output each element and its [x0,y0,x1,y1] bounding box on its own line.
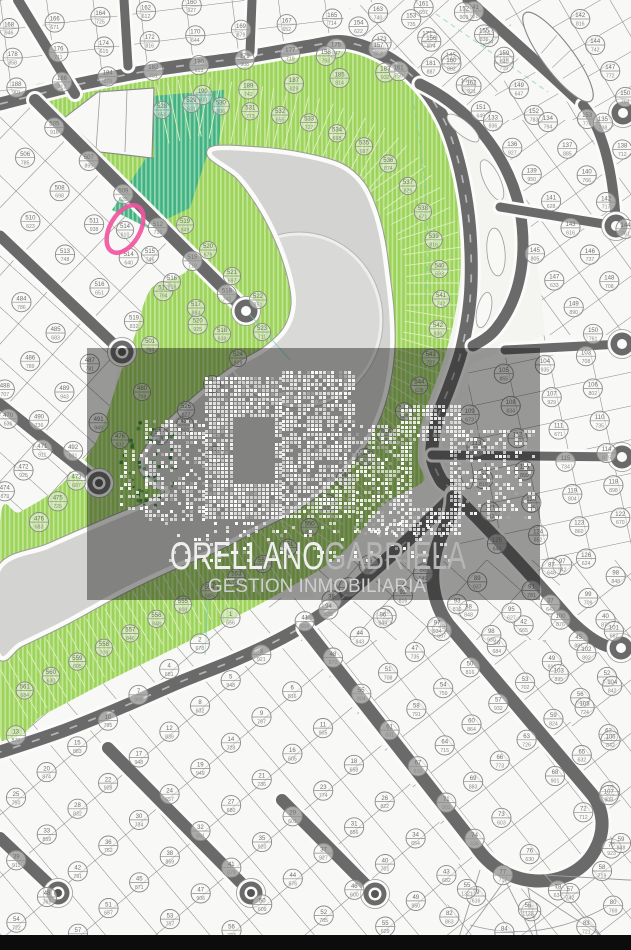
svg-text:56: 56 [228,924,235,930]
svg-text:140: 140 [582,170,593,176]
svg-text:149: 149 [514,83,525,89]
svg-text:789: 789 [26,364,35,370]
svg-text:520: 520 [193,319,204,325]
svg-text:48: 48 [330,652,337,658]
svg-text:61: 61 [386,724,393,730]
svg-text:ORELLANOGABRIELA: ORELLANOGABRIELA [170,535,466,578]
svg-text:63: 63 [523,734,530,740]
svg-text:176: 176 [53,46,64,52]
svg-text:77: 77 [500,869,507,875]
svg-text:928: 928 [104,786,113,792]
svg-text:664: 664 [300,624,309,630]
svg-text:773: 773 [495,763,504,769]
svg-text:712: 712 [618,152,627,158]
svg-text:742: 742 [566,896,575,902]
svg-text:104: 104 [607,680,618,686]
svg-text:738: 738 [599,125,608,131]
svg-text:693: 693 [435,272,444,278]
svg-text:879: 879 [237,32,246,38]
svg-text:761: 761 [589,337,598,343]
svg-text:486: 486 [25,355,36,361]
svg-text:31: 31 [351,822,358,828]
svg-text:657: 657 [104,911,113,917]
svg-text:164: 164 [95,11,106,17]
svg-text:944: 944 [378,621,387,627]
svg-text:727: 727 [305,125,314,131]
svg-text:118: 118 [609,480,619,486]
svg-text:836: 836 [434,331,443,337]
svg-text:750: 750 [394,74,403,80]
svg-text:633: 633 [550,283,559,289]
svg-text:629: 629 [381,929,390,935]
svg-text:55: 55 [358,688,365,694]
svg-text:679: 679 [204,253,213,259]
svg-text:48: 48 [44,891,51,897]
svg-text:39: 39 [13,855,20,861]
svg-text:484: 484 [16,296,27,302]
svg-text:683: 683 [51,336,60,342]
svg-text:35: 35 [259,836,266,842]
svg-text:870: 870 [329,660,338,666]
svg-text:160: 160 [187,0,198,6]
svg-text:56: 56 [525,903,532,909]
svg-text:805: 805 [73,664,82,670]
svg-text:711: 711 [258,335,266,341]
svg-text:876: 876 [288,881,297,887]
svg-text:761: 761 [621,231,630,237]
svg-text:489: 489 [59,386,70,392]
svg-text:772: 772 [606,74,615,80]
svg-text:785: 785 [21,160,30,166]
svg-text:786: 786 [17,305,26,311]
svg-text:814: 814 [335,81,344,87]
svg-text:16: 16 [289,748,296,754]
svg-text:711: 711 [54,55,62,61]
svg-text:161: 161 [419,2,430,8]
svg-text:103: 103 [581,350,592,356]
svg-text:44: 44 [289,873,296,879]
svg-text:615: 615 [100,49,109,55]
svg-text:142: 142 [601,196,612,202]
svg-text:671: 671 [419,215,428,221]
svg-text:698: 698 [333,136,342,142]
svg-text:927: 927 [508,150,517,156]
svg-text:687: 687 [72,483,81,489]
svg-text:684: 684 [492,649,501,655]
svg-text:871: 871 [135,885,144,891]
svg-text:714: 714 [328,21,337,27]
svg-text:948: 948 [134,760,143,766]
svg-text:472: 472 [18,465,29,471]
svg-text:539: 539 [429,234,440,240]
svg-text:519: 519 [129,316,140,322]
svg-text:159: 159 [499,51,510,57]
svg-text:656: 656 [226,620,235,626]
svg-text:887: 887 [427,70,436,76]
svg-text:515: 515 [187,255,198,261]
svg-text:938: 938 [218,337,227,343]
svg-text:142: 142 [575,13,586,19]
svg-text:808: 808 [179,607,188,613]
svg-text:863: 863 [445,920,454,926]
svg-text:708: 708 [384,676,393,682]
svg-text:541: 541 [436,293,447,299]
svg-text:627: 627 [507,615,516,621]
svg-text:474: 474 [0,486,10,492]
svg-text:490: 490 [34,414,45,420]
svg-text:19: 19 [197,763,204,769]
svg-text:908: 908 [240,62,249,68]
svg-text:136: 136 [507,142,518,148]
svg-text:172: 172 [145,35,156,41]
svg-text:155: 155 [479,29,490,35]
svg-text:558: 558 [99,642,110,648]
svg-text:185: 185 [335,72,346,78]
svg-text:671: 671 [554,432,563,438]
svg-text:59: 59 [618,837,625,843]
svg-text:719: 719 [286,57,295,63]
svg-text:53: 53 [522,677,529,683]
svg-text:122: 122 [615,512,626,518]
svg-text:742: 742 [223,297,232,303]
svg-text:152: 152 [459,6,470,12]
svg-text:11: 11 [320,722,327,728]
svg-text:189: 189 [243,84,254,90]
svg-text:71: 71 [443,797,450,803]
svg-text:1321: 1321 [461,892,473,898]
svg-text:654: 654 [411,841,420,847]
svg-text:507: 507 [84,155,95,161]
svg-text:12: 12 [166,726,173,732]
svg-text:628: 628 [547,204,556,210]
svg-text:898: 898 [609,488,618,494]
svg-text:69: 69 [470,776,477,782]
svg-text:68: 68 [552,770,559,776]
svg-text:40: 40 [382,858,389,864]
svg-text:773: 773 [246,114,255,120]
svg-text:678: 678 [195,646,204,652]
svg-text:178: 178 [8,52,19,58]
svg-text:717: 717 [602,205,611,211]
svg-text:793: 793 [321,59,330,65]
svg-text:182: 182 [148,65,159,71]
svg-text:769: 769 [609,908,618,914]
svg-text:102: 102 [581,647,592,653]
svg-text:657: 657 [419,10,428,16]
svg-text:97: 97 [434,621,441,627]
svg-text:600: 600 [350,892,359,898]
svg-text:870: 870 [11,738,20,744]
svg-text:30: 30 [136,814,143,820]
svg-text:810: 810 [453,607,462,613]
svg-text:41: 41 [228,862,235,868]
svg-text:921: 921 [257,657,266,663]
svg-text:816: 816 [168,285,177,291]
svg-text:22: 22 [105,777,112,783]
svg-text:794: 794 [621,100,630,106]
svg-text:735: 735 [407,22,416,28]
svg-text:701: 701 [381,867,390,873]
svg-text:742: 742 [437,302,446,308]
svg-text:609: 609 [258,907,267,913]
svg-text:105: 105 [580,702,591,708]
svg-text:839: 839 [165,734,174,740]
svg-text:50: 50 [467,662,474,668]
svg-text:765: 765 [43,900,52,906]
svg-text:635: 635 [119,197,128,203]
svg-text:708: 708 [605,284,614,290]
svg-text:712: 712 [579,815,588,821]
svg-text:512: 512 [153,222,164,228]
svg-text:655: 655 [276,118,285,124]
svg-text:516: 516 [167,276,178,282]
svg-text:168: 168 [4,22,15,28]
svg-text:45: 45 [575,635,582,641]
svg-text:104: 104 [540,359,551,365]
svg-text:17: 17 [135,752,142,758]
svg-text:184: 184 [103,71,114,77]
svg-text:848: 848 [464,613,473,619]
svg-text:725: 725 [96,20,105,26]
svg-text:783: 783 [530,118,539,124]
svg-text:36: 36 [105,840,112,846]
svg-text:179: 179 [240,54,251,60]
svg-text:161: 161 [394,65,405,71]
svg-text:829: 829 [290,86,299,92]
svg-text:874: 874 [427,44,436,50]
svg-text:94: 94 [325,604,332,610]
svg-text:839: 839 [324,612,333,618]
svg-text:610: 610 [414,769,423,775]
svg-text:816: 816 [466,670,475,676]
svg-text:802: 802 [588,391,597,397]
svg-text:56: 56 [577,692,584,698]
svg-text:616: 616 [566,231,575,237]
svg-text:83: 83 [583,921,590,927]
svg-text:734: 734 [135,823,144,829]
svg-text:158: 158 [321,50,332,56]
svg-text:51: 51 [385,667,392,673]
svg-text:529: 529 [186,98,197,104]
svg-text:76: 76 [526,848,533,854]
svg-text:665: 665 [519,628,528,634]
svg-text:107: 107 [547,391,558,397]
svg-text:186: 186 [57,76,68,82]
svg-text:691: 691 [196,834,205,840]
svg-text:943: 943 [60,395,69,401]
svg-text:901: 901 [442,805,451,811]
svg-text:920: 920 [258,845,267,851]
svg-text:106: 106 [588,383,599,389]
svg-text:508: 508 [55,185,66,191]
svg-text:557: 557 [125,628,136,634]
svg-text:475: 475 [53,496,64,502]
svg-text:822: 822 [380,804,389,810]
svg-text:535: 535 [359,141,370,147]
svg-text:47: 47 [412,646,419,652]
svg-text:73: 73 [498,812,505,818]
svg-text:485: 485 [51,327,62,333]
svg-text:682: 682 [442,878,451,884]
svg-text:805: 805 [531,256,540,262]
svg-text:20: 20 [43,766,50,772]
svg-text:111: 111 [554,424,564,430]
svg-text:895: 895 [84,164,93,170]
svg-text:107: 107 [604,789,615,795]
svg-text:40: 40 [602,614,609,620]
svg-text:561: 561 [20,685,31,691]
svg-text:719: 719 [598,874,607,880]
svg-text:892: 892 [582,655,591,661]
svg-text:528: 528 [157,104,168,110]
svg-text:GESTION INMOBILIARIA: GESTION INMOBILIARIA [208,575,426,597]
svg-text:23: 23 [320,785,327,791]
svg-text:13: 13 [12,730,19,736]
svg-text:842: 842 [606,743,615,749]
svg-text:516: 516 [94,282,105,288]
svg-text:519: 519 [180,219,191,225]
svg-text:931: 931 [69,454,78,460]
svg-text:95: 95 [508,607,515,613]
svg-text:925: 925 [19,473,28,479]
svg-text:138: 138 [617,144,628,150]
svg-text:64: 64 [441,740,448,746]
svg-text:180: 180 [194,59,205,65]
svg-text:169: 169 [236,24,247,30]
svg-text:542: 542 [433,323,444,329]
svg-text:795: 795 [104,723,113,729]
svg-text:658: 658 [350,768,359,774]
svg-text:735: 735 [411,655,420,661]
svg-text:187: 187 [289,78,300,84]
svg-text:816: 816 [576,22,585,28]
svg-text:163: 163 [373,7,384,13]
svg-text:27: 27 [228,799,235,805]
svg-text:190: 190 [198,89,209,95]
svg-text:470: 470 [3,413,14,419]
svg-text:776: 776 [583,122,592,128]
svg-text:1138: 1138 [522,912,533,918]
svg-text:156: 156 [426,36,437,42]
svg-text:859: 859 [165,859,174,865]
svg-text:147: 147 [549,275,560,281]
svg-text:901: 901 [551,779,560,785]
svg-text:916: 916 [50,130,59,136]
svg-text:518: 518 [217,328,228,334]
svg-text:657: 657 [165,797,174,803]
svg-text:797: 797 [257,720,266,726]
svg-text:921: 921 [467,89,476,95]
svg-text:632: 632 [196,709,205,715]
svg-text:759: 759 [439,691,448,697]
svg-text:623: 623 [26,224,35,230]
svg-text:816: 816 [288,694,297,700]
svg-text:520: 520 [203,244,214,250]
svg-text:96: 96 [379,612,386,618]
svg-text:28: 28 [74,803,81,809]
svg-text:905: 905 [134,698,143,704]
svg-text:174: 174 [99,41,110,47]
svg-text:946: 946 [5,31,14,37]
svg-text:938: 938 [90,227,99,233]
svg-text:536: 536 [383,158,394,164]
svg-text:43: 43 [443,869,450,875]
svg-text:701: 701 [149,73,158,79]
svg-text:103: 103 [554,668,565,674]
svg-text:119: 119 [568,488,578,494]
svg-text:848: 848 [611,579,620,585]
svg-text:556: 556 [151,613,162,619]
svg-text:885: 885 [563,151,572,157]
svg-text:29: 29 [289,811,296,817]
svg-text:640: 640 [124,260,133,266]
svg-text:848: 848 [617,846,626,852]
svg-text:879: 879 [103,79,112,85]
svg-text:734: 734 [561,464,570,470]
svg-text:785: 785 [319,918,328,924]
svg-text:152: 152 [529,109,540,115]
svg-text:932: 932 [381,75,390,81]
svg-text:832: 832 [73,811,82,817]
svg-text:890: 890 [569,310,578,316]
svg-text:560: 560 [46,670,57,676]
svg-text:603: 603 [497,821,506,827]
svg-text:950: 950 [527,177,536,183]
svg-text:53: 53 [167,913,174,919]
svg-text:509: 509 [118,188,129,194]
svg-text:843: 843 [355,639,364,645]
svg-text:742: 742 [591,48,600,54]
svg-text:948: 948 [226,683,235,689]
svg-text:709: 709 [584,601,593,607]
svg-text:46: 46 [351,884,358,890]
svg-text:166: 166 [50,17,61,23]
svg-text:10: 10 [105,715,112,721]
svg-text:80: 80 [610,900,617,906]
svg-text:533: 533 [304,117,315,123]
svg-text:144: 144 [590,39,601,45]
svg-text:151: 151 [476,105,487,111]
svg-text:38: 38 [166,851,173,857]
svg-text:514: 514 [120,224,131,230]
svg-text:115: 115 [561,456,571,462]
svg-text:735: 735 [595,423,604,429]
svg-text:652: 652 [282,27,291,33]
svg-text:153: 153 [582,113,593,119]
svg-text:59: 59 [550,713,557,719]
svg-text:106: 106 [605,735,616,741]
svg-text:901: 901 [12,90,21,96]
svg-text:876: 876 [556,622,565,628]
svg-text:530: 530 [216,100,227,106]
svg-text:804: 804 [568,497,577,503]
svg-text:143: 143 [565,222,576,228]
svg-text:707: 707 [0,392,9,398]
svg-text:605: 605 [288,756,297,762]
svg-text:742: 742 [244,92,253,98]
svg-text:728: 728 [227,745,236,751]
svg-text:934: 934 [433,629,442,635]
svg-text:154: 154 [353,21,364,27]
svg-text:684: 684 [20,693,29,699]
svg-text:612: 612 [142,14,151,20]
svg-text:141: 141 [546,195,557,201]
svg-text:49: 49 [412,895,419,901]
svg-text:515: 515 [145,249,156,255]
svg-text:806: 806 [216,109,225,115]
svg-text:766: 766 [582,178,591,184]
svg-text:175: 175 [331,43,342,49]
